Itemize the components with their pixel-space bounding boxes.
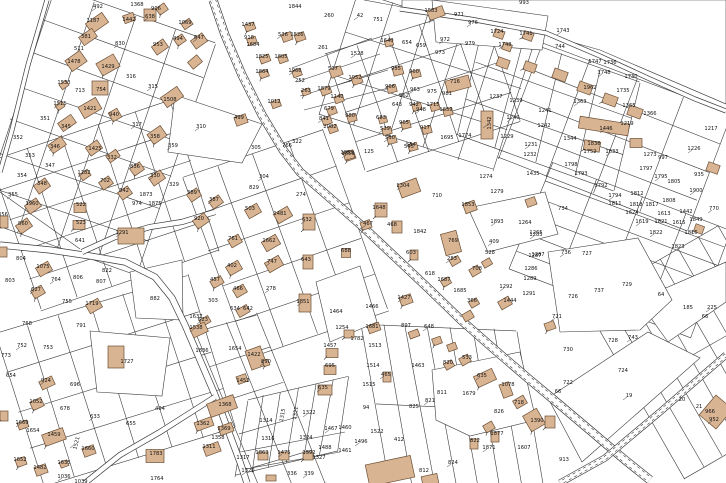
parcel-label: 1822 <box>649 230 662 236</box>
parcel-label: 1648 <box>372 205 385 211</box>
parcel-label: 724 <box>618 368 629 374</box>
parcel-label: 1735 <box>616 88 629 94</box>
parcel-label: 860 <box>18 221 28 227</box>
parcel-line <box>718 225 726 402</box>
parcel-label: 1427 <box>397 295 410 301</box>
parcel-label: 353 <box>25 153 35 159</box>
parcel-label: 1291 <box>522 291 535 297</box>
parcel-label: 1285 <box>529 232 542 238</box>
parcel-label: 1368 <box>130 2 143 8</box>
parcel-label: 1229 <box>500 134 513 140</box>
parcel-label: 402 <box>227 263 237 269</box>
parcel-label: 804 <box>16 256 27 262</box>
building <box>0 411 8 421</box>
parcel-label: 981 <box>442 91 452 97</box>
parcel-label: 734 <box>558 206 569 212</box>
parcel-label: 494 <box>173 36 184 42</box>
parcel-label: 1873 <box>139 192 152 198</box>
parcel-label: 358 <box>150 134 160 140</box>
parcel-label: 468 <box>387 222 397 228</box>
parcel-label: 1219 <box>620 121 633 127</box>
parcel-label: 822 <box>102 268 112 274</box>
parcel-label: 1363 <box>573 99 586 105</box>
parcel-label: 1264 <box>518 220 532 226</box>
parcel-label: 1362 <box>196 421 209 427</box>
parcel-label: 1466 <box>365 304 378 310</box>
parcel-label: 1231 <box>524 142 537 148</box>
parcel-label: 1851 <box>296 299 309 305</box>
parcel-label: 316 <box>126 74 136 80</box>
parcel-label: 303 <box>208 298 218 304</box>
parcel-label: 710 <box>432 193 442 199</box>
parcel-label: 1344 <box>563 136 577 142</box>
parcel-label: 1817 <box>645 202 658 208</box>
parcel-label: 1681 <box>365 324 378 330</box>
parcel-label: 2082 <box>323 124 336 130</box>
building <box>552 68 569 82</box>
parcel-label: 1842 <box>413 229 426 235</box>
parcel-label: 1452 <box>236 378 249 384</box>
parcel-label: 1429 <box>101 64 114 70</box>
parcel-label: 1538 <box>189 325 202 331</box>
parcel-label: 1662 <box>262 238 275 244</box>
parcel-label: 1900 <box>689 188 702 194</box>
parcel-label: 261 <box>318 45 328 51</box>
parcel-label: 679 <box>324 106 334 112</box>
parcel-label: 252 <box>295 78 305 84</box>
parcel-label: 533 <box>462 355 472 361</box>
parcel-label: 412 <box>394 437 404 443</box>
parcel-label: 1808 <box>662 198 675 204</box>
parcel-label: 642 <box>243 306 253 312</box>
parcel-label: 1893 <box>490 219 503 225</box>
parcel-label: 457 <box>210 277 220 283</box>
parcel-label: 744 <box>555 44 566 50</box>
open-parcel <box>468 192 558 252</box>
parcel-label: 1764 <box>150 476 164 482</box>
parcel-label: 1821 <box>654 219 667 225</box>
parcel-label: 1743 <box>556 28 569 34</box>
building <box>545 416 555 428</box>
parcel-label: 1652 <box>13 457 26 463</box>
parcel-label: 965 <box>399 120 409 126</box>
parcel-label: 1528 <box>350 51 363 57</box>
parcel-label: 1365 <box>622 103 635 109</box>
parcel-label: 466 <box>233 286 243 292</box>
parcel-label: 1320 <box>241 468 254 474</box>
parcel-label: 1818 <box>629 202 642 208</box>
parcel-label: 975 <box>427 89 437 95</box>
parcel-label: 974 <box>132 201 143 207</box>
parcel-label: 1012 <box>267 99 280 105</box>
parcel-label: 1446 <box>599 126 612 132</box>
parcel-label: 953 <box>153 42 163 48</box>
parcel-label: 829 <box>249 185 259 191</box>
parcel-label: 655 <box>126 421 136 427</box>
parcel-label: 1274 <box>479 174 493 180</box>
parcel-label: 1654 <box>228 346 242 352</box>
parcel-label: 1823 <box>671 244 684 250</box>
parcel-label: 935 <box>694 172 704 178</box>
parcel-label: 1442 <box>679 209 692 215</box>
parcel-label: 755 <box>62 299 72 305</box>
parcel-label: 1481 <box>273 211 286 217</box>
parcel-label: 1853 <box>461 202 474 208</box>
cadastral-map: 4921368906144263810691187381830511953494… <box>0 0 726 483</box>
parcel-label: 1052 <box>29 399 42 405</box>
parcel-line <box>248 376 348 400</box>
building <box>447 342 458 352</box>
parcel-label: 1036 <box>57 474 70 480</box>
parcel-label: 1684 <box>246 42 260 48</box>
parcel-label: 695 <box>325 363 335 369</box>
parcel-label: 1237 <box>489 94 502 100</box>
parcel-line <box>345 62 500 113</box>
parcel-label: 811 <box>437 390 447 396</box>
parcel-label: 523 <box>76 220 86 226</box>
parcel-label: 769 <box>448 238 458 244</box>
parcel-label: 1289 <box>523 276 536 282</box>
parcel-label: 1741 <box>519 31 532 37</box>
parcel-label: 522 <box>76 202 86 208</box>
parcel-label: 766 <box>282 143 292 149</box>
parcel-label: 1855 <box>340 150 353 156</box>
parcel-label: 1863 <box>255 450 268 456</box>
parcel-label: 1793 <box>574 171 587 177</box>
parcel-label: 882 <box>150 296 160 302</box>
parcel-label: 1633 <box>605 149 618 155</box>
parcel-label: 603 <box>406 250 416 256</box>
parcel-label: 1437 <box>241 22 254 28</box>
parcel-label: 1273 <box>643 152 656 158</box>
parcel-label: 511 <box>74 46 84 52</box>
parcel-label: 754 <box>96 87 107 93</box>
parcel-label: 1461 <box>338 448 351 454</box>
parcel-label: 1825 <box>255 54 268 60</box>
parcel-label: 812 <box>419 468 429 474</box>
parcel-label: 1844 <box>288 4 302 10</box>
parcel-label: 1952 <box>348 75 361 81</box>
parcel-label: 643 <box>392 102 402 108</box>
parcel-label: 1619 <box>635 219 648 225</box>
parcel-label: 807 <box>96 279 106 285</box>
parcel-label: 722 <box>563 380 573 386</box>
parcel-label: 1435 <box>526 171 539 177</box>
parcel-label: 1311 <box>202 444 215 450</box>
parcel-label: 688 <box>341 248 351 254</box>
parcel-label: 761 <box>228 236 238 242</box>
parcel-label: 1960 <box>25 201 38 207</box>
parcel-label: 381 <box>81 34 91 40</box>
parcel-label: 347 <box>45 163 55 169</box>
parcel-label: 920 <box>194 216 204 222</box>
parcel-line <box>137 44 216 275</box>
parcel-label: 1511 <box>53 101 66 107</box>
open-parcel <box>168 95 262 163</box>
building <box>481 258 492 269</box>
parcel-label: 1366 <box>643 111 656 117</box>
parcel-label: 753 <box>43 345 53 351</box>
parcel-label: 329 <box>169 182 179 188</box>
parcel-label: 1715 <box>426 102 439 108</box>
parcel-label: 979 <box>465 41 475 47</box>
parcel-label: 545 <box>404 144 414 150</box>
parcel-label: 64 <box>658 292 665 298</box>
building <box>630 139 642 148</box>
building <box>326 349 338 358</box>
parcel-label: 528 <box>485 250 495 256</box>
parcel-label: 1526 <box>290 32 303 38</box>
parcel-label: 1324 <box>299 435 313 441</box>
parcel-label: 1467 <box>324 426 337 432</box>
parcel-label: 356 <box>0 212 8 218</box>
parcel-label: 1239 <box>509 98 522 104</box>
parcel-label: 499 <box>234 115 244 121</box>
survey-tick <box>71 229 74 232</box>
parcel-label: 1240 <box>506 115 519 121</box>
parcel-label: 366 <box>467 298 477 304</box>
parcel-label: 768 <box>22 321 32 327</box>
parcel-label: 1287 <box>528 253 541 259</box>
parcel-label: 1669 <box>15 420 28 426</box>
parcel-label: 1805 <box>667 179 680 185</box>
parcel-label: 348 <box>37 181 47 187</box>
parcel-label: 1286 <box>524 266 537 272</box>
building <box>365 455 415 483</box>
parcel-label: 1798 <box>564 162 577 168</box>
parcel-label: 1460 <box>338 425 351 431</box>
road-surface <box>0 0 47 172</box>
parcel-label: 1475 <box>277 450 290 456</box>
parcel-label: 803 <box>5 278 15 284</box>
parcel-label: 713 <box>75 88 85 94</box>
parcel-label: 125 <box>364 149 374 155</box>
parcel-label: 1864 <box>255 69 269 75</box>
parcel-label: 537 <box>328 66 338 72</box>
survey-tick <box>0 227 1 230</box>
parcel-label: 21 <box>696 404 703 410</box>
parcel-label: 305 <box>251 145 261 151</box>
building <box>496 57 510 70</box>
parcel-label: 634 <box>230 306 241 312</box>
parcel-label: 1962 <box>583 85 596 91</box>
parcel-label: 1459 <box>47 432 60 438</box>
road-surface <box>85 397 215 483</box>
parcel-label: 997 <box>658 155 668 161</box>
parcel-line <box>698 236 726 412</box>
parcel-label: 962 <box>399 93 409 99</box>
parcel-label: 729 <box>622 282 632 288</box>
parcel-label: 1782 <box>350 336 363 342</box>
parcel-label: 1812 <box>630 191 643 197</box>
parcel-label: 980 <box>345 113 355 119</box>
parcel-label: 1242 <box>537 123 550 129</box>
building <box>408 329 420 339</box>
parcel-label: 1241 <box>538 108 551 114</box>
parcel-label: 1316 <box>261 436 274 442</box>
parcel-label: 66 <box>555 389 562 395</box>
parcel-label: 822 <box>470 438 480 444</box>
parcel-label: 702 <box>100 178 110 184</box>
parcel-label: 643 <box>301 257 311 263</box>
parcel-label: 955 <box>391 66 401 72</box>
parcel-label: 1075 <box>36 264 49 270</box>
parcel-label: 332 <box>107 155 117 161</box>
parcel-line <box>57 16 136 248</box>
parcel-label: 913 <box>559 457 569 463</box>
parcel-line <box>252 395 263 472</box>
parcel-label: 1613 <box>657 211 670 217</box>
building <box>432 336 443 346</box>
parcel-label: 654 <box>402 40 413 46</box>
parcel-label: 1442 <box>122 17 135 23</box>
survey-tick <box>373 216 376 219</box>
parcel-label: 806 <box>73 275 83 281</box>
parcel-label: 1140 <box>330 94 343 100</box>
parcel-label: 1421 <box>83 106 96 112</box>
parcel-label: 1522 <box>370 429 383 435</box>
parcel-label: 1508 <box>163 97 176 103</box>
parcel-line <box>364 0 402 7</box>
survey-tick <box>0 420 1 423</box>
parcel-label: 1422 <box>247 352 260 358</box>
parcel-label: 728 <box>608 338 618 344</box>
parcel-label: 971 <box>454 12 464 18</box>
parcel-label: 716 <box>450 79 460 85</box>
parcel-label: 1654 <box>26 428 40 434</box>
parcel-label: 1291 <box>115 230 128 236</box>
parcel-label: 1877 <box>490 431 503 437</box>
survey-tick <box>324 357 327 360</box>
parcel-label: 1816 <box>684 230 697 236</box>
building <box>188 55 203 70</box>
parcel-label: 730 <box>563 347 573 353</box>
parcel-label: 906 <box>151 6 161 12</box>
parcel-label: 1748 <box>498 42 511 48</box>
parcel-label: 1226 <box>687 146 700 152</box>
parcel-label: 1533 <box>57 80 70 86</box>
parcel-label: 1783 <box>149 451 162 457</box>
parcel-label: 66 <box>702 314 709 320</box>
parcel-label: 726 <box>568 294 578 300</box>
parcel-label: 1583 <box>424 8 437 14</box>
building <box>544 321 556 332</box>
parcel-label: 1279 <box>490 189 503 195</box>
parcel-label: 718 <box>514 400 524 406</box>
parcel-label: 322 <box>292 139 302 145</box>
parcel-label: 1217 <box>704 126 717 132</box>
parcel-label: 1635 <box>57 460 70 466</box>
parcel-label: 1368 <box>218 402 231 408</box>
parcel-label: 274 <box>296 192 307 198</box>
parcel-label: 1871 <box>482 445 495 451</box>
parcel-label: 1730 <box>624 74 637 80</box>
parcel-label: 654 <box>6 373 17 379</box>
parcel-label: 678 <box>60 406 70 412</box>
building <box>421 473 439 483</box>
cadastral-map-canvas[interactable]: 4921368906144263810691187381830511953494… <box>0 0 726 483</box>
parcel-label: 1463 <box>411 363 424 369</box>
parcel-label: 1292 <box>499 284 512 290</box>
parcel-label: 1488 <box>318 445 331 451</box>
parcel-label: 1254 <box>335 325 349 331</box>
building <box>0 247 7 257</box>
parcel-label: 727 <box>582 251 592 257</box>
parcel-label: 1836 <box>195 348 208 354</box>
parcel-label: 503 <box>245 206 255 212</box>
parcel-label: 918 <box>244 35 254 41</box>
parcel-label: 342 <box>119 188 129 194</box>
parcel-label: 960 <box>409 69 419 75</box>
parcel-label: 20 <box>679 397 686 403</box>
parcel-label: 1342 <box>487 116 493 129</box>
parcel-label: 966 <box>705 409 715 415</box>
parcel-label: 1849 <box>689 217 702 223</box>
parcel-label: 1464 <box>329 309 343 315</box>
parcel-label: 1514 <box>366 363 380 369</box>
parcel-label: 1322 <box>302 410 315 416</box>
parcel-label: 336 <box>287 471 297 477</box>
parcel-label: 826 <box>494 409 504 415</box>
parcel-label: 659 <box>416 43 426 49</box>
parcel-label: 1792 <box>594 183 607 189</box>
parcel-label: 1687 <box>437 277 450 283</box>
parcel-label: 1182 <box>77 170 90 176</box>
parcel-line <box>511 129 697 200</box>
parcel-label: 1039 <box>74 479 87 483</box>
parcel-label: 1624 <box>625 210 639 216</box>
parcel-label: 263 <box>301 88 311 94</box>
parcel-line <box>338 377 349 452</box>
parcel-label: 1515 <box>362 382 375 388</box>
parcel-label: 1752 <box>583 149 596 155</box>
parcel-label: 618 <box>425 271 435 277</box>
parcel-label: 1805 <box>274 54 287 60</box>
parcel-label: 1966 <box>288 68 301 74</box>
parcel-label: 1679 <box>462 391 475 397</box>
parcel-label: 1457 <box>323 343 336 349</box>
parcel-label: 641 <box>75 238 85 244</box>
parcel-label: 1685 <box>453 288 466 294</box>
parcel-label: 1748 <box>597 70 610 76</box>
parcel-label: 494 <box>155 406 166 412</box>
parcel-label: 345 <box>61 124 71 130</box>
parcel-line <box>304 384 316 459</box>
parcel-label: 1314 <box>259 418 273 424</box>
parcel-line <box>218 166 283 346</box>
parcel-label: 1794 <box>608 193 622 199</box>
parcel-label: 836 <box>130 164 140 170</box>
survey-tick <box>408 259 411 262</box>
parcel-label: 1727 <box>120 359 133 365</box>
parcel-label: 1747 <box>588 59 601 65</box>
parcel-label: 1232 <box>523 152 536 158</box>
parcel-label: 1317 <box>236 455 249 461</box>
parcel-label: 897 <box>401 323 411 329</box>
parcel-label: 1719 <box>85 301 98 307</box>
parcel-label: 1875 <box>148 201 161 207</box>
parcel-label: 1513 <box>368 343 381 349</box>
parcel-label: 1736 <box>603 60 616 66</box>
parcel-label: 696 <box>70 382 80 388</box>
parcel-label: 185 <box>683 305 693 311</box>
parcel-label: 42 <box>357 13 364 19</box>
parcel-label: 1078 <box>501 382 514 388</box>
parcel-label: 1482 <box>33 465 46 471</box>
parcel-label: 1496 <box>354 439 367 445</box>
parcel-label: 1304 <box>396 183 410 189</box>
parcel-label: 1607 <box>517 445 530 451</box>
